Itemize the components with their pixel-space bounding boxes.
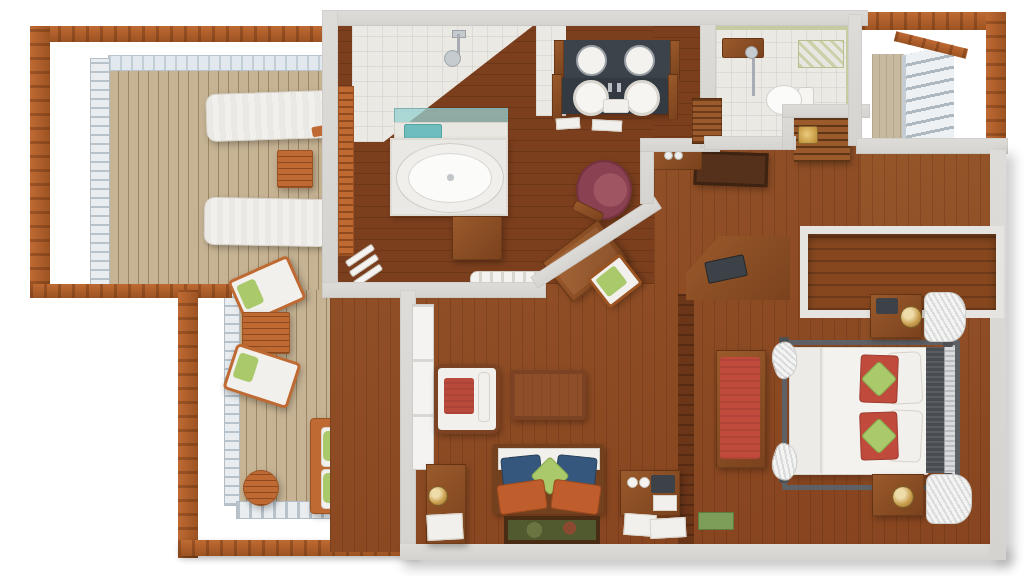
balcony-railing-left-upper — [90, 58, 110, 290]
rear-pergola-right — [986, 12, 1006, 150]
window-drape — [926, 474, 972, 524]
tub-stool — [452, 216, 502, 260]
floor-divider-strip — [678, 294, 694, 546]
window-shutters — [338, 86, 354, 256]
wall-right — [990, 150, 1006, 560]
closet-gold-item — [798, 126, 818, 144]
table-lamp — [900, 306, 922, 328]
clock-radio — [876, 298, 898, 314]
doormat — [693, 151, 768, 188]
rear-pergola-top — [862, 12, 1006, 30]
floor-artwork — [504, 516, 600, 544]
wall-top — [322, 10, 868, 26]
window-drape — [924, 292, 966, 342]
sun-lounger — [204, 197, 331, 247]
shower-head — [745, 46, 758, 59]
round-mirror — [576, 45, 607, 76]
coffee-cup — [639, 477, 650, 488]
balcony-railing-left-lower — [224, 292, 240, 506]
wall-shower-right — [848, 14, 862, 146]
pergola-beam-top — [30, 26, 332, 42]
faucet — [617, 83, 621, 92]
bed-bench-cushion — [720, 357, 760, 459]
armchair-back — [478, 372, 490, 422]
sofa-cushion-orange — [550, 479, 602, 515]
coffee-table — [510, 370, 586, 420]
glass — [674, 151, 683, 160]
wall-rear-balcony-bottom — [856, 138, 1008, 154]
bed-canopy-frame — [782, 340, 960, 490]
green-cushion — [595, 265, 627, 297]
pergola-beam-lower-left — [178, 290, 198, 558]
sofa — [492, 444, 604, 514]
round-bistro-table — [243, 470, 279, 506]
sofa-cushion-orange — [496, 479, 548, 515]
faucet — [608, 83, 612, 92]
towel-stack — [603, 99, 629, 113]
door-header — [722, 38, 764, 58]
rear-ladder-railing — [902, 44, 954, 151]
vessel-sink — [624, 80, 660, 116]
minibar-cabinet — [620, 470, 680, 516]
espresso-machine — [651, 475, 675, 493]
vanity-leg — [668, 74, 678, 120]
armchair — [434, 364, 500, 434]
minibar-cards — [653, 495, 677, 511]
tub-jet — [447, 174, 454, 181]
round-mirror — [624, 45, 655, 76]
desk-lamp — [428, 486, 448, 506]
rear-beige-wall — [872, 54, 904, 146]
green-magazine — [698, 512, 734, 530]
coffee-cup — [627, 477, 638, 488]
pergola-beam-mid — [30, 284, 232, 298]
vanity-leg — [552, 74, 562, 120]
pergola-beam-left — [30, 26, 50, 298]
bath-mat — [556, 117, 581, 130]
balcony-side-table — [277, 150, 313, 188]
striped-mat — [798, 40, 844, 68]
green-cushion — [236, 278, 265, 310]
floor-plan — [0, 0, 1024, 576]
glass — [664, 151, 673, 160]
bathtub — [396, 143, 504, 213]
balcony-glass-top — [108, 55, 334, 71]
teal-towel — [404, 124, 442, 139]
table-lamp — [892, 486, 914, 508]
wall-left — [322, 10, 338, 298]
balcony-door-panels — [412, 304, 434, 470]
green-cushion — [232, 352, 259, 383]
rain-shower-icon — [438, 28, 478, 74]
armchair-red-cushion — [444, 378, 474, 414]
desk-paper — [426, 513, 463, 541]
vanity-counter — [560, 78, 668, 114]
wall-bath-bottom — [322, 282, 546, 298]
towel-ladder — [344, 250, 380, 284]
open-book-page — [650, 517, 687, 539]
bath-mat — [592, 119, 623, 132]
wall-bottom — [400, 544, 1006, 560]
vanity-mirror-panel — [562, 40, 670, 78]
